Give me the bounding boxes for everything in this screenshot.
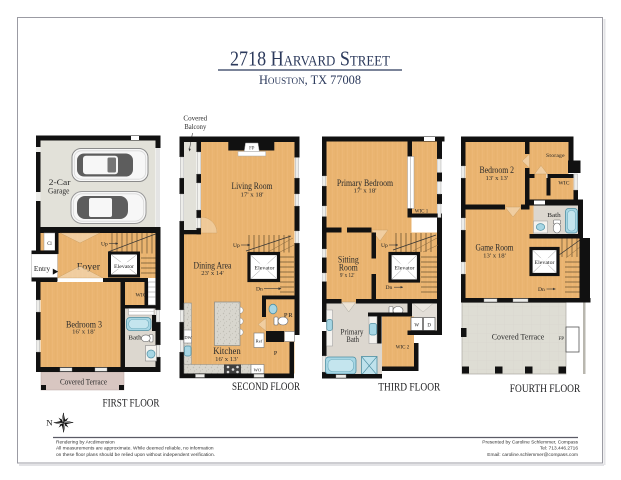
svg-text:Elevator: Elevator bbox=[114, 264, 134, 270]
svg-text:Rendering by Arcdimension: Rendering by Arcdimension bbox=[56, 440, 115, 446]
svg-text:W: W bbox=[414, 324, 419, 329]
svg-text:Game Room: Game Room bbox=[476, 243, 514, 253]
svg-text:Elevator: Elevator bbox=[535, 260, 555, 266]
svg-text:Covered: Covered bbox=[183, 113, 207, 122]
svg-text:FP: FP bbox=[558, 337, 564, 342]
svg-text:Primary Bedroom: Primary Bedroom bbox=[337, 178, 393, 189]
svg-text:Up: Up bbox=[233, 243, 240, 249]
svg-text:Elevator: Elevator bbox=[395, 266, 415, 272]
svg-text:Entry: Entry bbox=[34, 265, 51, 273]
svg-text:Kitchen: Kitchen bbox=[213, 346, 241, 357]
svg-text:Dn: Dn bbox=[386, 285, 393, 291]
svg-text:16' x 18': 16' x 18' bbox=[72, 330, 95, 336]
svg-text:Bedroom 2: Bedroom 2 bbox=[480, 165, 515, 175]
svg-text:FIRST FLOOR: FIRST FLOOR bbox=[103, 398, 160, 410]
svg-text:Up: Up bbox=[381, 243, 388, 249]
svg-text:Room: Room bbox=[339, 263, 358, 273]
svg-text:13' x 18': 13' x 18' bbox=[483, 254, 506, 260]
svg-text:SECOND FLOOR: SECOND FLOOR bbox=[232, 381, 300, 393]
svg-text:Presented by Caroline Schlemme: Presented by Caroline Schlemmer, Compass bbox=[482, 440, 578, 446]
svg-text:Dn: Dn bbox=[538, 287, 545, 293]
svg-text:17' x 18': 17' x 18' bbox=[241, 193, 264, 199]
svg-text:Ref: Ref bbox=[256, 339, 263, 344]
svg-text:WIC: WIC bbox=[558, 180, 569, 186]
svg-text:WO: WO bbox=[254, 368, 262, 373]
svg-text:23' x 14': 23' x 14' bbox=[201, 271, 224, 277]
svg-text:DW: DW bbox=[184, 335, 192, 340]
svg-text:Email: caroline.schlemmer@comp: Email: caroline.schlemmer@compass.com bbox=[487, 452, 578, 458]
svg-text:PR: PR bbox=[284, 312, 293, 319]
svg-text:Dn: Dn bbox=[256, 287, 263, 293]
svg-text:Living Room: Living Room bbox=[232, 181, 273, 192]
svg-text:All measurements are approxima: All measurements are approximate. While … bbox=[56, 446, 214, 452]
svg-text:N: N bbox=[46, 418, 53, 428]
svg-text:Elevator: Elevator bbox=[255, 266, 275, 272]
svg-text:9' x 12': 9' x 12' bbox=[340, 273, 355, 279]
svg-text:Up: Up bbox=[101, 242, 108, 248]
svg-text:Bath: Bath bbox=[547, 212, 561, 219]
svg-text:2718 Harvard Street: 2718 Harvard Street bbox=[230, 47, 390, 71]
svg-text:D: D bbox=[427, 324, 431, 329]
svg-text:THIRD FLOOR: THIRD FLOOR bbox=[378, 382, 440, 394]
svg-text:Bath: Bath bbox=[128, 334, 142, 341]
svg-text:Storage: Storage bbox=[546, 153, 565, 159]
svg-text:Houston, TX 77008: Houston, TX 77008 bbox=[259, 73, 361, 87]
svg-text:Covered Terrace: Covered Terrace bbox=[492, 332, 545, 341]
svg-text:Cl: Cl bbox=[47, 242, 52, 247]
svg-text:WIC 2: WIC 2 bbox=[396, 346, 410, 351]
svg-text:FOURTH FLOOR: FOURTH FLOOR bbox=[510, 383, 581, 395]
svg-text:17' x 18': 17' x 18' bbox=[354, 189, 377, 195]
svg-text:Garage: Garage bbox=[48, 186, 70, 196]
svg-text:Bath: Bath bbox=[346, 334, 359, 344]
svg-text:13' x 13': 13' x 13' bbox=[486, 176, 509, 182]
svg-text:16' x 13': 16' x 13' bbox=[215, 357, 238, 363]
svg-text:FP: FP bbox=[249, 147, 255, 152]
svg-text:Balcony: Balcony bbox=[184, 122, 206, 131]
svg-text:on these floor plans should be: on these floor plans should be relied up… bbox=[56, 452, 215, 458]
svg-text:Tel: 713.446.2716: Tel: 713.446.2716 bbox=[540, 446, 578, 452]
svg-text:Covered Terrace: Covered Terrace bbox=[60, 377, 107, 386]
